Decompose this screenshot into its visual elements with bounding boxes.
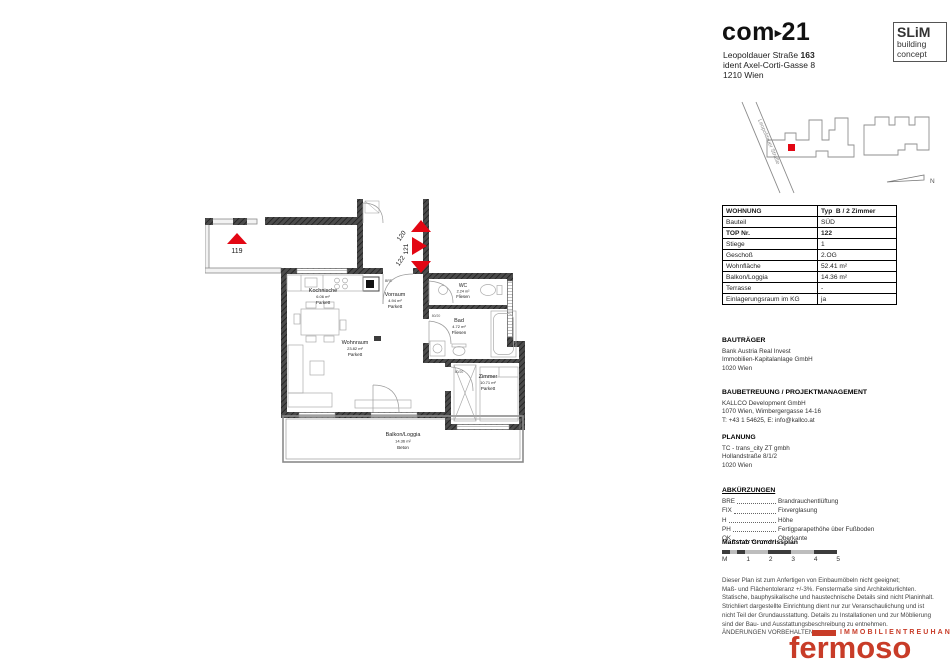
row-value: Typ B / 2 Zimmer <box>818 206 896 216</box>
street-label: Leopoldauer Straße <box>756 118 781 165</box>
scale-bar-block: Maßstab Grundrissplan M 1 2 3 4 5 <box>722 539 842 563</box>
fermoso-logo: fermoso <box>789 630 911 666</box>
contact-line: TC - trans_city ZT gmbh <box>722 445 790 454</box>
project-address: Leopoldauer Straße 163 ident Axel-Corti-… <box>723 50 815 80</box>
contact-line: 1020 Wien <box>722 365 813 374</box>
slim-line1: SLiM <box>897 25 943 40</box>
north-arrow-icon: N <box>887 175 935 185</box>
svg-text:Fliesen: Fliesen <box>452 330 467 335</box>
planung-heading: PLANUNG <box>722 434 790 443</box>
leader-dots <box>733 525 776 532</box>
row-value: 52.41 m² <box>818 261 896 271</box>
contact-line: T: +43 1 54625, E: info@kallco.at <box>722 417 867 426</box>
baubetreuung-block: BAUBETREUUNG / PROJEKTMANAGEMENT KALLCO … <box>722 389 867 425</box>
slim-logo: SLiM building concept <box>893 22 947 62</box>
bautraeger-heading: BAUTRÄGER <box>722 337 813 346</box>
row-label: Balkon/Loggia <box>723 272 818 282</box>
bautraeger-block: BAUTRÄGER Bank Austria Real Invest Immob… <box>722 337 813 373</box>
address-street: Leopoldauer Straße <box>723 50 798 60</box>
svg-text:2.24 m²: 2.24 m² <box>457 290 471 294</box>
abbreviations-block: ABKÜRZUNGEN BREBrandrauchentlüftung FIXF… <box>722 486 874 543</box>
abbr: BRE <box>722 497 735 506</box>
scale-bar <box>722 550 837 554</box>
baubetreuung-heading: BAUBETREUUNG / PROJEKTMANAGEMENT <box>722 389 867 398</box>
abbr-meaning: Höhe <box>778 516 793 525</box>
abbr-meaning: Fixverglasung <box>778 506 817 515</box>
svg-text:WC: WC <box>459 283 468 289</box>
svg-text:6.06 m²: 6.06 m² <box>316 294 330 299</box>
disclaimer-line: Maß- und Flächentoleranz +/-3%. Fensterm… <box>722 586 934 595</box>
row-label: Wohnfläche <box>723 261 818 271</box>
unit-location-marker <box>788 144 795 151</box>
abbr-row: FIXFixverglasung <box>722 506 874 515</box>
logo-text: com <box>722 18 775 46</box>
table-row: Einlagerungsraum im KGja <box>723 293 896 304</box>
unit-markers: 119 120 121 122 <box>227 220 431 273</box>
bre-shaft-label: BRE <box>385 279 393 283</box>
abbr-meaning: Brandrauchentlüftung <box>778 497 838 506</box>
door-label-bad: 80/20 <box>432 314 441 318</box>
svg-text:Parkett: Parkett <box>348 352 363 357</box>
leader-dots <box>737 497 776 504</box>
door-label-zimmer: 80/20 <box>455 370 464 374</box>
svg-text:4.72 m²: 4.72 m² <box>452 324 466 329</box>
table-row: WOHNUNGTyp B / 2 Zimmer <box>723 206 896 216</box>
contact-line: 1020 Wien <box>722 462 790 471</box>
table-row: Geschoß2.OG <box>723 249 896 260</box>
abbr: PH <box>722 525 731 534</box>
table-row: BauteilSÜD <box>723 216 896 227</box>
tick: M <box>722 556 727 563</box>
table-row: Balkon/Loggia14.36 m² <box>723 271 896 282</box>
abbr-row: HHöhe <box>722 516 874 525</box>
room-zimmer: Zimmer 10.71 m² Parkett <box>479 374 498 391</box>
table-row: Terrasse- <box>723 282 896 293</box>
planung-block: PLANUNG TC - trans_city ZT gmbh Hollands… <box>722 434 790 470</box>
marker-119: 119 <box>231 248 242 255</box>
table-row: Wohnfläche52.41 m² <box>723 260 896 271</box>
row-value: - <box>818 283 896 293</box>
svg-text:4.94 m²: 4.94 m² <box>388 298 402 303</box>
com21-logo: com▸21 <box>722 18 810 47</box>
svg-text:10.71 m²: 10.71 m² <box>480 380 496 385</box>
abbr-row: PHFertigparapethöhe über Fußboden <box>722 525 874 534</box>
row-value: SÜD <box>818 217 896 227</box>
table-row: Stiege1 <box>723 238 896 249</box>
disclaimer-line: nicht Teil der Grundausstattung. Details… <box>722 612 934 621</box>
contact-line: KALLCO Development GmbH <box>722 400 867 409</box>
abbr: FIX <box>722 506 732 515</box>
svg-text:Balkon/Loggia: Balkon/Loggia <box>386 432 422 438</box>
svg-text:Parkett: Parkett <box>316 300 331 305</box>
north-label: N <box>930 178 935 185</box>
row-value: 122 <box>818 228 896 238</box>
wohnraum-badge <box>374 336 381 341</box>
slim-line3: concept <box>897 50 943 60</box>
abbreviations-heading: ABKÜRZUNGEN <box>722 486 874 495</box>
room-wc: WC 2.24 m² Fliesen <box>456 283 470 299</box>
abbr-row: BREBrandrauchentlüftung <box>722 497 874 506</box>
svg-text:Parkett: Parkett <box>388 304 403 309</box>
tick: 2 <box>769 556 773 563</box>
room-wohnraum: Wohnraum 23.82 m² Parkett <box>342 336 381 357</box>
table-row: TOP Nr.122 <box>723 227 896 238</box>
contact-line: Immobilien-Kapitalanlage GmbH <box>722 356 813 365</box>
row-label: TOP Nr. <box>723 228 818 238</box>
row-value: 14.36 m² <box>818 272 896 282</box>
disclaimer-line: Statische, bauphysikalische und haustech… <box>722 594 934 603</box>
arrow-up-119-icon <box>227 233 247 244</box>
row-label: Terrasse <box>723 283 818 293</box>
plan-sheet: BRE <box>0 0 950 671</box>
door-label-wc: 80/20 <box>432 275 441 279</box>
abbr-meaning: Fertigparapethöhe über Fußboden <box>778 525 874 534</box>
tick: 1 <box>746 556 750 563</box>
site-map: Leopoldauer Straße N <box>712 100 947 195</box>
svg-text:23.82 m²: 23.82 m² <box>347 346 363 351</box>
floor-plan-drawing: BRE <box>205 195 535 485</box>
row-label: Bauteil <box>723 217 818 227</box>
tick: 3 <box>791 556 795 563</box>
room-balkon: Balkon/Loggia 14.36 m² Beton <box>386 432 422 450</box>
row-label: Stiege <box>723 239 818 249</box>
scale-heading: Maßstab Grundrissplan <box>722 539 842 546</box>
scale-ticks: M 1 2 3 4 5 <box>722 556 840 563</box>
svg-text:Fliesen: Fliesen <box>456 294 470 299</box>
contact-line: Hollandstraße 8/1/2 <box>722 453 790 462</box>
address-number: 163 <box>801 50 815 60</box>
corridor-walls <box>205 219 281 273</box>
marker-122: 122 <box>395 254 407 267</box>
tick: 5 <box>836 556 840 563</box>
room-bad: Bad 4.72 m² Fliesen <box>452 318 467 335</box>
unit-info-table: WOHNUNGTyp B / 2 Zimmer BauteilSÜD TOP N… <box>722 205 897 305</box>
row-value: 1 <box>818 239 896 249</box>
address-line-1: Leopoldauer Straße 163 <box>723 50 815 60</box>
disclaimer-line: Dieser Plan ist zum Anfertigen von Einba… <box>722 577 934 586</box>
room-kochnische: Kochnische 6.06 m² Parkett <box>309 288 337 305</box>
room-vorraum: Vorraum 4.94 m² Parkett <box>385 292 406 309</box>
leader-dots <box>729 516 776 523</box>
address-line-2: ident Axel-Corti-Gasse 8 <box>723 60 815 70</box>
row-label: Einlagerungsraum im KG <box>723 294 818 304</box>
svg-text:Parkett: Parkett <box>481 386 496 391</box>
marker-121: 121 <box>403 243 410 254</box>
contact-line: Bank Austria Real Invest <box>722 348 813 357</box>
leader-dots <box>734 506 776 513</box>
abbr: H <box>722 516 727 525</box>
logo-number: 21 <box>781 18 810 46</box>
marker-120: 120 <box>396 229 408 242</box>
contact-line: 1070 Wien, Wimbergergasse 14-16 <box>722 408 867 417</box>
svg-text:14.36 m²: 14.36 m² <box>395 439 411 444</box>
tick: 4 <box>814 556 818 563</box>
svg-text:Beton: Beton <box>397 445 409 450</box>
row-value: ja <box>818 294 896 304</box>
row-label: WOHNUNG <box>723 206 818 216</box>
disclaimer-line: Strichliert dargestellte Einrichtung die… <box>722 603 934 612</box>
row-label: Geschoß <box>723 250 818 260</box>
address-line-3: 1210 Wien <box>723 70 815 80</box>
disclaimer-line: sind der Bau- und Ausstattungsbeschreibu… <box>722 621 934 630</box>
row-value: 2.OG <box>818 250 896 260</box>
